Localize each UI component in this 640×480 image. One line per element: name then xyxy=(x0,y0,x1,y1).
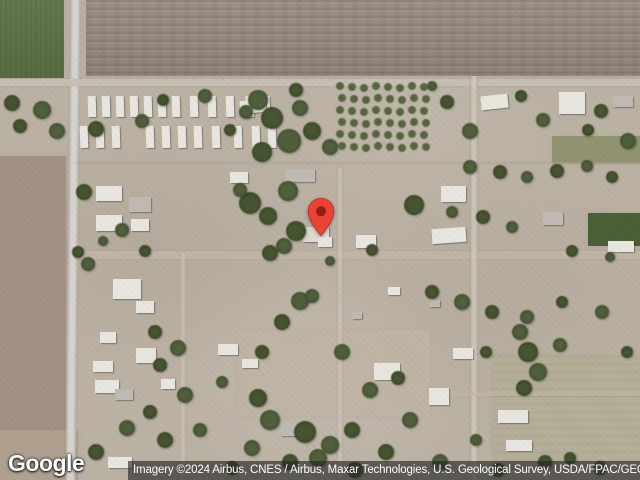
orchard-tree xyxy=(350,95,358,103)
orchard-tree xyxy=(338,142,346,150)
orchard-tree xyxy=(374,142,382,150)
orchard-tree xyxy=(398,144,406,152)
orchard-tree xyxy=(360,108,368,116)
tree-canopy xyxy=(177,387,193,403)
orchard-tree xyxy=(396,132,404,140)
tree-canopy xyxy=(49,123,65,139)
attribution-text: Imagery ©2024 Airbus, CNES / Airbus, Max… xyxy=(133,464,640,476)
orchard-tree xyxy=(384,131,392,139)
trailer-home xyxy=(112,126,121,148)
tree-canopy xyxy=(292,100,308,116)
tree-canopy xyxy=(536,113,550,127)
tree-canopy xyxy=(440,95,454,109)
building-roof xyxy=(388,287,400,295)
tree-canopy xyxy=(88,444,104,460)
tree-canopy xyxy=(391,371,405,385)
building-roof xyxy=(441,186,466,202)
trailer-home xyxy=(130,96,139,117)
tree-canopy xyxy=(81,257,95,271)
tree-canopy xyxy=(119,420,135,436)
tree-canopy xyxy=(516,380,532,396)
tree-canopy xyxy=(276,238,292,254)
google-logo[interactable]: Google xyxy=(8,450,84,477)
building-roof xyxy=(480,94,508,111)
tree-canopy xyxy=(193,423,207,437)
building-roof xyxy=(96,186,122,201)
map-pin-body xyxy=(308,198,334,235)
road-horizontal xyxy=(74,251,640,259)
tree-canopy xyxy=(506,221,518,233)
tree-canopy xyxy=(566,245,578,257)
orchard-tree xyxy=(386,95,394,103)
building-roof xyxy=(498,410,528,423)
tree-canopy xyxy=(13,119,27,133)
tree-canopy xyxy=(157,432,173,448)
tree-canopy xyxy=(476,210,490,224)
building-roof xyxy=(230,172,248,183)
tree-canopy xyxy=(216,376,228,388)
tree-canopy xyxy=(153,358,167,372)
building-roof xyxy=(242,359,258,368)
road-horizontal xyxy=(0,79,640,86)
tree-canopy xyxy=(115,223,129,237)
tree-canopy xyxy=(139,245,151,257)
orchard-tree xyxy=(420,83,428,91)
map-pin-dot xyxy=(316,206,326,216)
field-patch xyxy=(0,156,66,452)
tree-canopy xyxy=(620,133,636,149)
building-roof xyxy=(432,227,467,244)
tree-canopy xyxy=(493,165,507,179)
tree-canopy xyxy=(521,171,533,183)
tree-canopy xyxy=(606,171,618,183)
road-vertical xyxy=(337,168,343,480)
tree-canopy xyxy=(255,345,269,359)
building-roof xyxy=(218,344,238,355)
tree-canopy xyxy=(325,256,335,266)
tree-canopy xyxy=(259,207,277,225)
orchard-tree xyxy=(420,131,428,139)
building-roof xyxy=(136,301,154,313)
trailer-home xyxy=(226,96,235,117)
tree-canopy xyxy=(454,294,470,310)
field-patch xyxy=(86,0,640,76)
tree-canopy xyxy=(402,412,418,428)
map-pin-icon[interactable] xyxy=(307,197,335,237)
tree-canopy xyxy=(362,382,378,398)
tree-canopy xyxy=(366,244,378,256)
tree-canopy xyxy=(303,122,321,140)
trailer-home xyxy=(146,126,155,148)
tree-canopy xyxy=(334,344,350,360)
tree-canopy xyxy=(322,139,338,155)
building-roof xyxy=(559,92,585,114)
building-roof xyxy=(543,212,563,225)
orchard-tree xyxy=(386,143,394,151)
tree-canopy xyxy=(98,236,108,246)
trailer-home xyxy=(162,126,171,148)
tree-canopy xyxy=(550,164,564,178)
tree-canopy xyxy=(344,422,360,438)
tree-canopy xyxy=(463,160,477,174)
satellite-imagery xyxy=(0,0,640,480)
tree-canopy xyxy=(143,405,157,419)
orchard-tree xyxy=(348,131,356,139)
tree-canopy xyxy=(252,142,272,162)
tree-canopy xyxy=(404,195,424,215)
orchard-tree xyxy=(422,95,430,103)
tree-canopy xyxy=(277,129,301,153)
orchard-tree xyxy=(396,84,404,92)
orchard-tree xyxy=(384,83,392,91)
building-roof xyxy=(506,440,532,451)
orchard-tree xyxy=(374,118,382,126)
orchard-tree xyxy=(348,83,356,91)
building-roof xyxy=(430,300,440,307)
orchard-tree xyxy=(336,82,344,90)
orchard-tree xyxy=(396,108,404,116)
trailer-home xyxy=(172,96,181,117)
orchard-tree xyxy=(360,132,368,140)
road-vertical xyxy=(65,0,80,480)
orchard-tree xyxy=(384,107,392,115)
tree-canopy xyxy=(88,121,104,137)
orchard-tree xyxy=(372,82,380,90)
building-roof xyxy=(131,219,149,231)
trailer-home xyxy=(194,126,203,148)
trailer-home xyxy=(116,96,125,117)
orchard-tree xyxy=(410,94,418,102)
trailer-home xyxy=(102,96,111,117)
orchard-tree xyxy=(350,119,358,127)
tree-canopy xyxy=(4,95,20,111)
orchard-tree xyxy=(410,118,418,126)
tree-canopy xyxy=(594,104,608,118)
orchard-tree xyxy=(422,119,430,127)
trailer-home xyxy=(178,126,187,148)
orchard-tree xyxy=(362,96,370,104)
building-roof xyxy=(93,361,113,372)
road-vertical xyxy=(180,253,186,480)
tree-canopy xyxy=(470,434,482,446)
building-roof xyxy=(318,237,332,247)
building-roof xyxy=(113,279,141,299)
tree-canopy xyxy=(427,81,437,91)
orchard-tree xyxy=(398,120,406,128)
tree-canopy xyxy=(289,83,303,97)
orchard-tree xyxy=(420,107,428,115)
attribution-bar: Imagery ©2024 Airbus, CNES / Airbus, Max… xyxy=(128,461,640,480)
tree-canopy xyxy=(556,296,568,308)
tree-canopy xyxy=(249,389,267,407)
orchard-tree xyxy=(372,106,380,114)
tree-canopy xyxy=(582,124,594,136)
orchard-tree xyxy=(410,142,418,150)
building-roof xyxy=(285,169,315,182)
tree-canopy xyxy=(262,245,278,261)
tree-canopy xyxy=(553,338,567,352)
orchard-tree xyxy=(336,130,344,138)
orchard-tree xyxy=(362,144,370,152)
trailer-home xyxy=(212,126,221,148)
tree-canopy xyxy=(581,160,593,172)
tree-canopy xyxy=(518,342,538,362)
building-roof xyxy=(129,197,151,212)
tree-canopy xyxy=(595,305,609,319)
trailer-home xyxy=(190,96,199,117)
tree-canopy xyxy=(425,285,439,299)
tree-canopy xyxy=(480,346,492,358)
tree-canopy xyxy=(260,410,280,430)
orchard-tree xyxy=(374,94,382,102)
tree-canopy xyxy=(485,305,499,319)
tree-canopy xyxy=(239,105,253,119)
tree-canopy xyxy=(148,325,162,339)
tree-canopy xyxy=(261,107,283,129)
tree-canopy xyxy=(378,444,394,460)
tree-canopy xyxy=(224,124,236,136)
tree-canopy xyxy=(244,440,260,456)
tree-canopy xyxy=(512,324,528,340)
trailer-home xyxy=(88,96,97,117)
building-roof xyxy=(429,388,449,405)
tree-canopy xyxy=(76,184,92,200)
orchard-tree xyxy=(338,118,346,126)
tree-canopy xyxy=(462,123,478,139)
orchard-tree xyxy=(362,120,370,128)
orchard-tree xyxy=(422,143,430,151)
building-roof xyxy=(115,389,133,400)
orchard-tree xyxy=(372,130,380,138)
building-roof xyxy=(352,312,362,319)
orchard-tree xyxy=(338,94,346,102)
building-roof xyxy=(608,241,634,252)
building-roof xyxy=(613,96,633,107)
tree-canopy xyxy=(520,310,534,324)
orchard-tree xyxy=(336,106,344,114)
tree-canopy xyxy=(233,183,247,197)
orchard-tree xyxy=(408,82,416,90)
satellite-map[interactable]: Google Imagery ©2024 Airbus, CNES / Airb… xyxy=(0,0,640,480)
building-roof xyxy=(453,348,473,359)
orchard-tree xyxy=(350,143,358,151)
tree-canopy xyxy=(170,340,186,356)
tree-canopy xyxy=(157,94,169,106)
building-roof xyxy=(161,379,175,389)
tree-canopy xyxy=(605,252,615,262)
orchard-tree xyxy=(348,107,356,115)
orchard-tree xyxy=(386,119,394,127)
tree-canopy xyxy=(72,246,84,258)
tree-canopy xyxy=(278,181,298,201)
tree-canopy xyxy=(198,89,212,103)
field-patch xyxy=(0,0,64,78)
tree-canopy xyxy=(446,206,458,218)
tree-canopy xyxy=(286,221,306,241)
tree-canopy xyxy=(294,421,316,443)
tree-canopy xyxy=(305,289,319,303)
tree-canopy xyxy=(274,314,290,330)
tree-canopy xyxy=(621,346,633,358)
tree-canopy xyxy=(515,90,527,102)
tree-canopy xyxy=(529,363,547,381)
tree-canopy xyxy=(135,114,149,128)
orchard-tree xyxy=(360,84,368,92)
orchard-tree xyxy=(398,96,406,104)
orchard-tree xyxy=(408,106,416,114)
orchard-tree xyxy=(408,130,416,138)
road-horizontal xyxy=(427,391,640,396)
building-roof xyxy=(100,332,116,343)
tree-canopy xyxy=(33,101,51,119)
